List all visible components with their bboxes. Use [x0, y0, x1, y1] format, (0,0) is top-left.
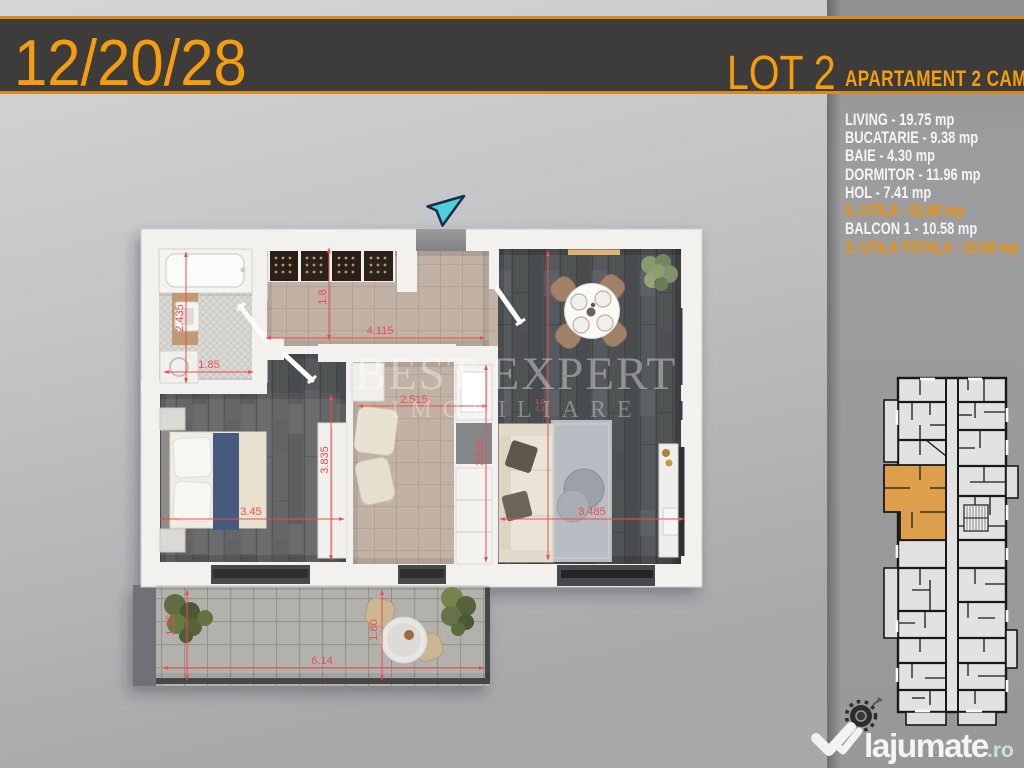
- svg-text:3.835: 3.835: [319, 446, 331, 474]
- svg-text:BUCATARIE - 9.38 mp: BUCATARIE - 9.38 mp: [845, 130, 978, 148]
- svg-text:LIVING - 19.75 mp: LIVING - 19.75 mp: [845, 112, 954, 130]
- svg-text:DORMITOR - 11.96 mp: DORMITOR - 11.96 mp: [845, 167, 981, 185]
- svg-text:HOL - 7.41 mp: HOL - 7.41 mp: [845, 185, 931, 203]
- svg-text:1.75: 1.75: [165, 614, 177, 635]
- svg-text:BAIE - 4.30 mp: BAIE - 4.30 mp: [845, 148, 935, 166]
- svg-text:3.485: 3.485: [578, 506, 606, 518]
- svg-text:S. UTILA - 52.80 mp: S. UTILA - 52.80 mp: [845, 203, 965, 221]
- svg-text:3.45: 3.45: [240, 506, 261, 518]
- svg-text:BEST EXPERT: BEST EXPERT: [355, 348, 678, 400]
- svg-text:6.14: 6.14: [311, 655, 332, 667]
- svg-text:3.835: 3.835: [474, 438, 486, 466]
- svg-text:2.435: 2.435: [174, 304, 186, 332]
- svg-text:4.115: 4.115: [367, 325, 394, 337]
- svg-text:12/20/28: 12/20/28: [14, 27, 247, 100]
- svg-text:1.80: 1.80: [368, 619, 380, 640]
- svg-text:BALCON 1 - 10.58 mp: BALCON 1 - 10.58 mp: [845, 221, 977, 239]
- svg-text:IMOBILIARE: IMOBILIARE: [391, 397, 642, 423]
- svg-text:APARTAMENT 2 CAMERE: APARTAMENT 2 CAMERE: [845, 67, 1024, 92]
- svg-text:lajumate: lajumate: [864, 728, 989, 765]
- svg-text:S. UTILA TOTALA - 10.58 mp: S. UTILA TOTALA - 10.58 mp: [845, 240, 1019, 258]
- svg-text:.ro: .ro: [987, 739, 1014, 762]
- svg-text:LOT 2: LOT 2: [727, 46, 836, 100]
- svg-text:1.85: 1.85: [198, 359, 219, 371]
- svg-text:1.8: 1.8: [317, 289, 329, 304]
